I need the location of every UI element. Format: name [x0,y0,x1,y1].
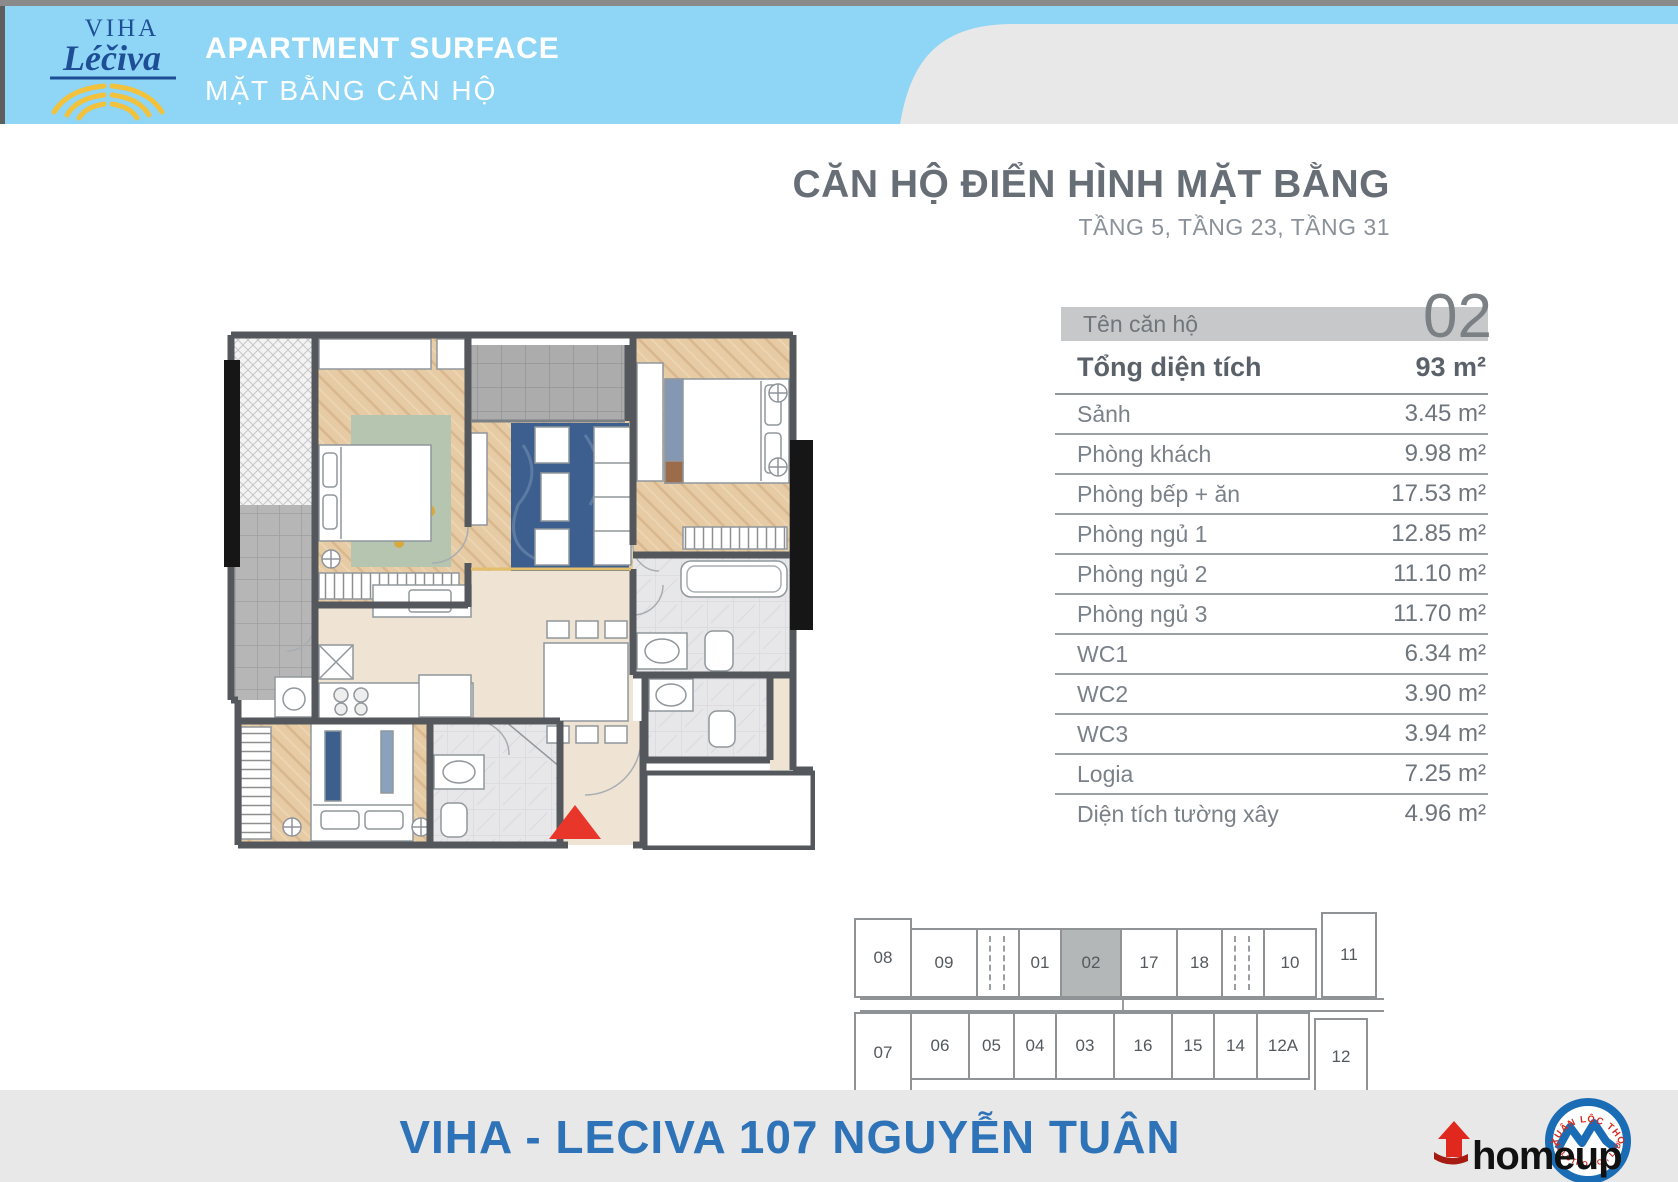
wc1-sink [645,639,679,663]
diagram-unit-cell-06: 06 [910,1012,970,1080]
area-label: WC2 [1077,681,1128,708]
diagram-unit-cell-14: 14 [1213,1012,1258,1080]
diagram-unit-cell-02: 02 [1060,928,1122,998]
area-label: Phòng khách [1077,441,1211,468]
unit-number: 02 [1423,286,1492,348]
area-table: Tên căn hộ 02 Tổng diện tích 93 m² Sảnh3… [1055,307,1488,833]
wc2-toilet [709,711,735,747]
building-floor-diagram: 0809010217181011 070605040316151412A12 [856,912,1416,1096]
area-row: Phòng ngủ 211.10 m² [1055,555,1488,595]
diagram-unit-cell-16: 16 [1113,1012,1173,1080]
diagram-unit-cell-11: 11 [1321,912,1377,998]
area-value: 3.90 m² [1405,680,1486,708]
header-corner-shape [838,6,1678,124]
diagram-unit-cell-17: 17 [1120,928,1178,998]
unit-name-bar: Tên căn hộ 02 [1061,307,1488,341]
area-rows: Sảnh3.45 m²Phòng khách9.98 m²Phòng bếp +… [1055,395,1488,833]
homeup-house-icon [1434,1121,1470,1165]
footer: VIHA - LECIVA 107 NGUYỄN TUÂN XUÂN LỘC T… [0,1090,1678,1182]
area-row: Diện tích tường xây4.96 m² [1055,795,1488,833]
area-value: 3.94 m² [1405,720,1486,748]
header: VIHA Léčiva APARTMENT SURFACE MẶT BẰNG C… [0,6,1678,124]
area-value: 3.45 m² [1405,400,1486,428]
logo-yellow-swoosh [54,86,162,118]
area-row: Phòng khách9.98 m² [1055,435,1488,475]
header-subtitle: MẶT BẰNG CĂN HỘ [205,75,560,107]
area-value: 4.96 m² [1405,800,1486,828]
diagram-unit-cell-04: 04 [1013,1012,1057,1080]
area-label: WC3 [1077,721,1128,748]
diagram-unit-cell-07: 07 [854,1012,912,1094]
diagram-top-row: 0809010217181011 [856,928,1416,998]
diagram-unit-cell-12A: 12A [1256,1012,1310,1080]
wc2-sink [656,684,686,706]
diagram-unit-cell-03: 03 [1055,1012,1115,1080]
diagram-unit-cell-01: 01 [1018,928,1062,998]
coffee-table [541,473,569,521]
area-value: 7.25 m² [1405,760,1486,788]
black-wall-left [224,360,240,567]
diagram-unit-cell-18: 18 [1176,928,1223,998]
diagram-shaft-cell [976,928,1020,998]
diagram-unit-cell-05: 05 [968,1012,1015,1080]
area-row: WC23.90 m² [1055,675,1488,715]
page-subtitle: TẦNG 5, TẦNG 23, TẦNG 31 [793,214,1390,241]
unit-name-label: Tên căn hộ [1061,311,1198,337]
total-area-value: 93 m² [1415,352,1486,383]
area-value: 11.10 m² [1393,560,1486,588]
homeup-wordmark: homeup [1472,1134,1622,1178]
page-title: CĂN HỘ ĐIỂN HÌNH MẶT BẰNG [793,163,1390,207]
title-block: CĂN HỘ ĐIỂN HÌNH MẶT BẰNG TẦNG 5, TẦNG 2… [793,163,1390,241]
diagram-unit-cell-08: 08 [854,918,912,998]
floor-plan-drawing [213,315,815,850]
header-titles: APARTMENT SURFACE MẶT BẰNG CĂN HỘ [205,32,560,107]
diagram-bottom-row: 070605040316151412A12 [856,1012,1416,1096]
area-row: WC33.94 m² [1055,715,1488,755]
washing-machine [275,677,313,717]
brand-logo: VIHA Léčiva [24,10,192,122]
diagram-unit-cell-15: 15 [1171,1012,1215,1080]
wc1-toilet [705,631,733,671]
header-title: APARTMENT SURFACE [205,32,560,66]
area-label: Logia [1077,761,1133,788]
area-row: Phòng ngủ 311.70 m² [1055,595,1488,635]
area-label: Phòng bếp + ăn [1077,481,1240,508]
balcony-floor [468,345,628,421]
area-value: 6.34 m² [1405,640,1486,668]
area-row: Logia7.25 m² [1055,755,1488,795]
sofa [594,427,631,565]
area-value: 12.85 m² [1391,520,1486,548]
logo-line2: Léčiva [62,38,161,78]
area-label: WC1 [1077,641,1128,668]
black-wall-right [790,440,813,630]
area-label: Diện tích tường xây [1077,801,1279,828]
area-row: Phòng ngủ 112.85 m² [1055,515,1488,555]
area-value: 11.70 m² [1393,600,1486,628]
floor-plan [213,315,815,850]
header-left-edge [0,6,5,124]
area-row: Sảnh3.45 m² [1055,395,1488,435]
diagram-corridor [860,998,1384,1012]
area-row: Phòng bếp + ăn17.53 m² [1055,475,1488,515]
wc3-sink [443,761,475,783]
outside-corridor-room [645,773,813,848]
diagram-shaft-cell [1221,928,1265,998]
dining-table [544,643,628,721]
area-label: Phòng ngủ 3 [1077,601,1207,628]
page: VIHA Léčiva APARTMENT SURFACE MẶT BẰNG C… [0,0,1678,1182]
diagram-unit-cell-12: 12 [1314,1018,1368,1096]
diagram-unit-cell-10: 10 [1263,928,1317,998]
area-label: Phòng ngủ 2 [1077,561,1207,588]
homeup-logo: XUÂN LỘC THỌ XALOTHO CO., LTD homeup [1410,1093,1650,1182]
total-area-label: Tổng diện tích [1077,352,1261,383]
wc3-toilet [441,803,467,837]
area-label: Sảnh [1077,401,1131,428]
project-name: VIHA - LECIVA 107 NGUYỄN TUÂN [0,1110,1580,1164]
diagram-unit-cell-09: 09 [910,928,978,998]
area-row: WC16.34 m² [1055,635,1488,675]
area-value: 17.53 m² [1391,480,1486,508]
area-label: Phòng ngủ 1 [1077,521,1207,548]
area-value: 9.98 m² [1405,440,1486,468]
